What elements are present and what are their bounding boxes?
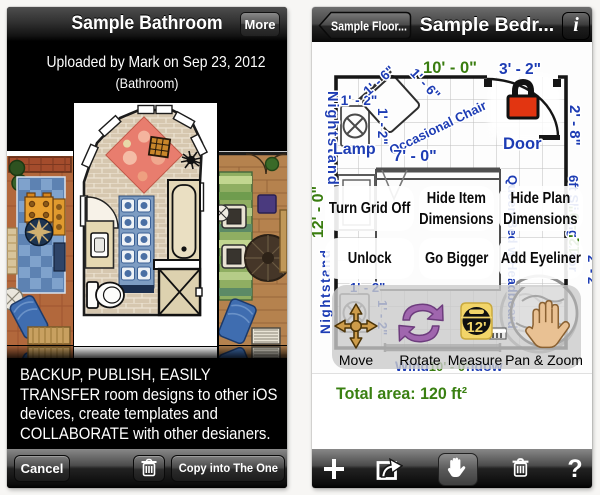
svg-text:Sample Floor...: Sample Floor... bbox=[331, 19, 407, 34]
svg-text:3' - 2": 3' - 2" bbox=[499, 61, 541, 78]
svg-text:Door: Door bbox=[503, 135, 542, 153]
svg-text:7' - 0": 7' - 0" bbox=[393, 148, 436, 165]
svg-text:2' - 8": 2' - 8" bbox=[566, 105, 583, 146]
svg-text:10' - 0": 10' - 0" bbox=[423, 59, 477, 77]
svg-text:12': 12' bbox=[466, 319, 486, 336]
svg-text:Nightstand: Nightstand bbox=[324, 91, 340, 187]
svg-text:2' - 2": 2' - 2" bbox=[585, 255, 592, 290]
svg-text:Lamp: Lamp bbox=[333, 141, 376, 158]
svg-text:1' - 2": 1' - 2" bbox=[375, 108, 390, 145]
